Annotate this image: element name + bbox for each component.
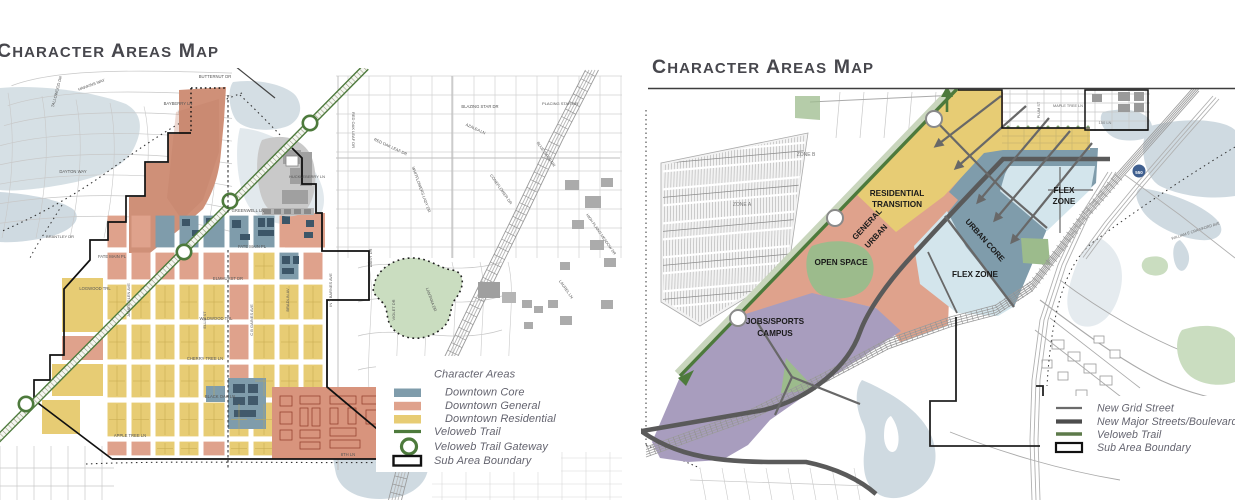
- svg-text:BRADLIN AV: BRADLIN AV: [285, 288, 290, 312]
- svg-text:PLUM ST: PLUM ST: [1037, 101, 1041, 118]
- svg-text:RESIDENTIAL: RESIDENTIAL: [870, 189, 925, 198]
- svg-text:MAPLE TREE LN: MAPLE TREE LN: [1053, 104, 1083, 108]
- svg-text:ELLIS ST: ELLIS ST: [202, 311, 207, 329]
- svg-text:Veloweb Trail: Veloweb Trail: [1097, 429, 1162, 441]
- svg-text:550: 550: [1135, 170, 1143, 175]
- svg-text:150 LN: 150 LN: [1099, 120, 1112, 125]
- svg-text:Sub Area Boundary: Sub Area Boundary: [1097, 442, 1191, 454]
- svg-text:8TH LN: 8TH LN: [341, 452, 355, 457]
- svg-text:FLEX: FLEX: [1054, 186, 1075, 195]
- svg-text:ZONE: ZONE: [1053, 197, 1076, 206]
- svg-text:ZONE A: ZONE A: [733, 202, 752, 208]
- svg-text:Veloweb Trail Gateway: Veloweb Trail Gateway: [434, 441, 549, 453]
- svg-text:BLAZING STAR DR: BLAZING STAR DR: [461, 104, 498, 109]
- svg-text:Downtown Core: Downtown Core: [445, 387, 525, 399]
- svg-text:BAYBERRY LN: BAYBERRY LN: [164, 101, 193, 106]
- svg-text:BLACK OAK LN: BLACK OAK LN: [205, 394, 235, 399]
- svg-text:CHERRY TREE LN: CHERRY TREE LN: [187, 356, 223, 361]
- svg-text:FLEX ZONE: FLEX ZONE: [952, 270, 998, 279]
- svg-text:APPLE TREE LN: APPLE TREE LN: [114, 433, 146, 438]
- svg-text:CHARACTER AREAS MAP: CHARACTER AREAS MAP: [652, 56, 874, 78]
- svg-text:Downtown Residential: Downtown Residential: [445, 413, 556, 425]
- svg-text:TRANSITION: TRANSITION: [872, 200, 922, 209]
- svg-text:OPEN SPACE: OPEN SPACE: [814, 258, 868, 267]
- svg-text:BRANTLEY DR: BRANTLEY DR: [46, 234, 74, 239]
- svg-text:RED OAK LEAF DR: RED OAK LEAF DR: [351, 112, 356, 148]
- svg-text:JOBS/SPORTS: JOBS/SPORTS: [746, 317, 805, 326]
- svg-text:BUTTERNUT DR: BUTTERNUT DR: [199, 74, 232, 79]
- svg-text:LOGWOOD TRL: LOGWOOD TRL: [79, 286, 111, 291]
- svg-text:GREENWELL LN: GREENWELL LN: [232, 208, 265, 213]
- svg-text:CHARACTER AREAS MAP: CHARACTER AREAS MAP: [0, 40, 219, 62]
- svg-text:DAISY DR: DAISY DR: [368, 248, 373, 267]
- svg-text:IN T BARNES AVE: IN T BARNES AVE: [328, 273, 333, 307]
- svg-text:Veloweb Trail: Veloweb Trail: [434, 426, 501, 438]
- svg-text:C B GAINES AVE: C B GAINES AVE: [249, 304, 254, 336]
- svg-text:Character Areas: Character Areas: [434, 369, 516, 381]
- svg-text:HUCKLEBERRY LN: HUCKLEBERRY LN: [289, 174, 325, 179]
- svg-text:New Major Streets/Boulevards: New Major Streets/Boulevards: [1097, 416, 1235, 428]
- svg-text:Downtown General: Downtown General: [445, 400, 541, 412]
- svg-text:JAMES GLEN AVE: JAMES GLEN AVE: [126, 283, 131, 317]
- svg-text:PLACING STAR DR: PLACING STAR DR: [542, 101, 578, 106]
- svg-text:ZONE B: ZONE B: [797, 152, 816, 158]
- svg-text:New Grid Street: New Grid Street: [1097, 403, 1175, 415]
- svg-text:FATE MAIN PL: FATE MAIN PL: [238, 244, 267, 249]
- svg-text:VIOLET DR: VIOLET DR: [391, 299, 396, 320]
- svg-text:CAMPUS: CAMPUS: [757, 329, 793, 338]
- svg-text:ELMHURST DR: ELMHURST DR: [213, 276, 243, 281]
- svg-text:FATE MAIN PL: FATE MAIN PL: [98, 254, 127, 259]
- svg-text:Sub Area Boundary: Sub Area Boundary: [434, 455, 533, 467]
- svg-text:DAYTON WAY: DAYTON WAY: [59, 169, 87, 174]
